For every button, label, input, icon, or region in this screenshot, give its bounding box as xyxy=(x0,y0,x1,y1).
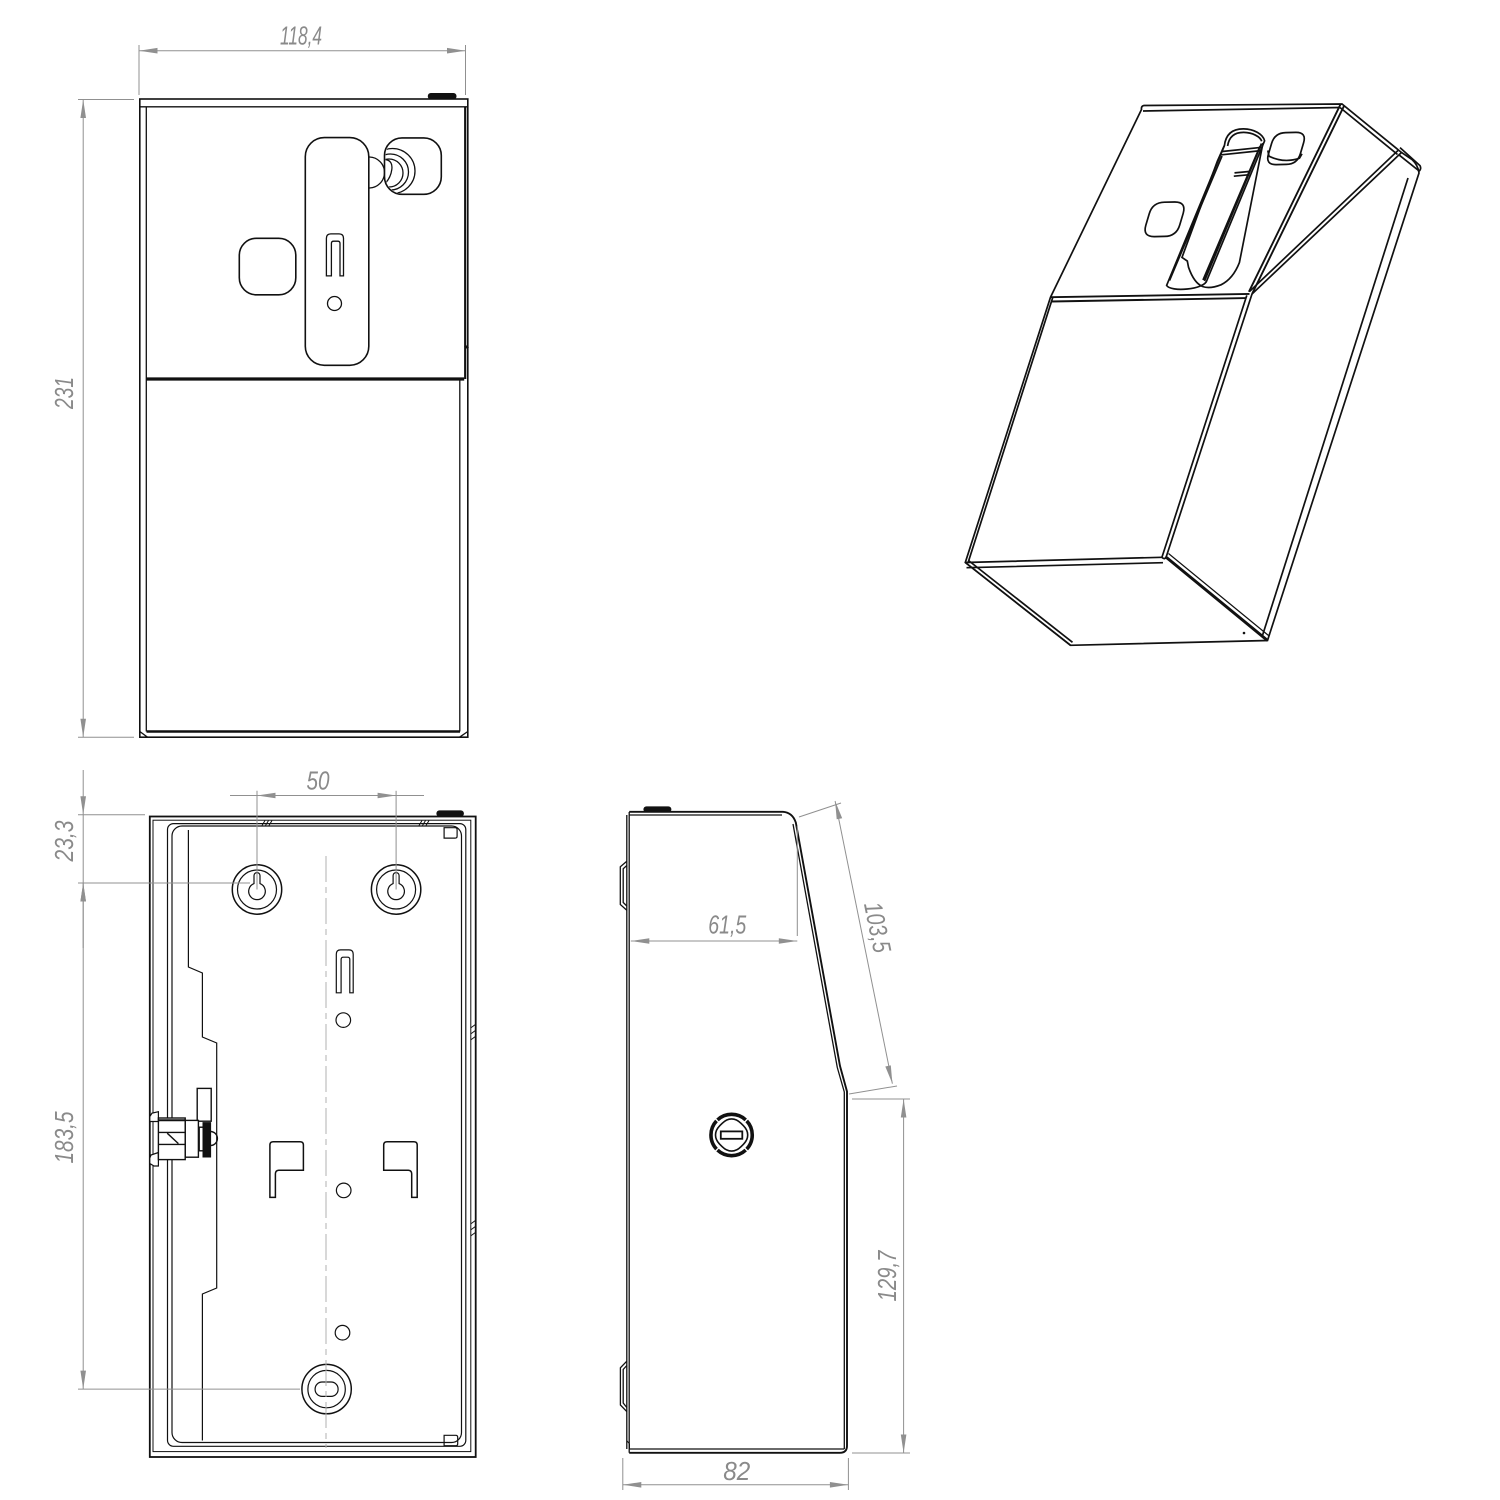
svg-text:23,3: 23,3 xyxy=(51,821,79,863)
svg-text:50: 50 xyxy=(307,768,330,796)
svg-text:129,7: 129,7 xyxy=(874,1250,902,1302)
svg-text:61,5: 61,5 xyxy=(708,912,747,940)
svg-text:118,4: 118,4 xyxy=(280,23,322,51)
svg-text:82: 82 xyxy=(723,1458,750,1486)
svg-text:231: 231 xyxy=(51,377,79,410)
svg-text:183,5: 183,5 xyxy=(51,1111,79,1164)
